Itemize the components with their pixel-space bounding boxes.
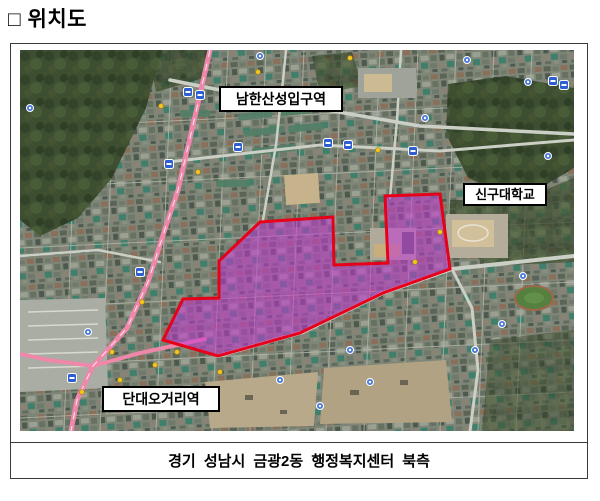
section-title: □ 위치도 (8, 3, 87, 33)
document-page: □ 위치도 (0, 0, 600, 501)
map-caption: 경기 성남시 금광2동 행정복지센터 북측 (10, 442, 588, 479)
map-label-shingu-university: 신구대학교 (463, 183, 547, 206)
map-label-namhansanseong-station: 남한산성입구역 (219, 86, 343, 112)
location-map: 남한산성입구역 신구대학교 단대오거리역 (20, 50, 574, 431)
location-map-frame: 남한산성입구역 신구대학교 단대오거리역 (10, 43, 588, 443)
parking-depot-area (20, 298, 108, 392)
map-label-dandae-ogeori-station: 단대오거리역 (102, 386, 220, 412)
